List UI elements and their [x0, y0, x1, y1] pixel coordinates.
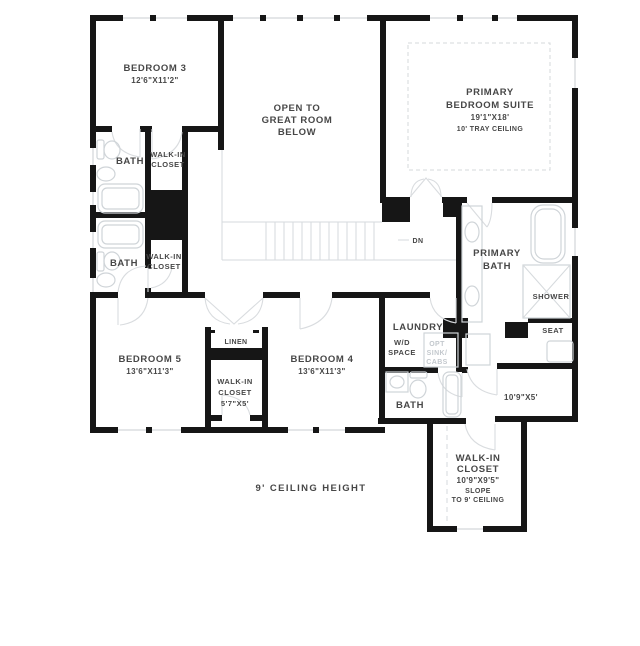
- door-swings: [112, 129, 497, 450]
- linen-name: LINEN: [225, 339, 248, 346]
- room-label-closet-mid: WALK-IN CLOSET: [146, 252, 182, 271]
- bedroom5-dims: 13'6"X11'3": [126, 367, 173, 376]
- room-label-closet-hall: WALK-IN CLOSET 5'7"X5': [217, 377, 253, 408]
- laundry-name: LAUNDRY: [393, 322, 443, 333]
- primary-suite-dims: 19'1"X18': [471, 113, 510, 122]
- primary-suite-ceiling-note: 10' TRAY CEILING: [457, 126, 524, 133]
- open-below-line1: OPEN TO: [274, 103, 321, 114]
- closet-upper-line2: CLOSET: [151, 160, 184, 169]
- open-below-line2: GREAT ROOM: [262, 115, 333, 126]
- open-below-line3: BELOW: [278, 127, 316, 138]
- laundry-opt-line3: CABS: [426, 359, 447, 366]
- room-label-bedroom-5: BEDROOM 5 13'6"X11'3": [119, 354, 182, 376]
- closet-upper-line1: WALK-IN: [150, 150, 186, 159]
- shower-seat-bench: [547, 341, 573, 362]
- primary-bath-line2: BATH: [483, 261, 511, 272]
- toilet: [410, 372, 427, 398]
- closet-hall-line2: CLOSET: [218, 388, 251, 397]
- hall-dims: 10'9"X5': [504, 393, 538, 402]
- seat-name: SEAT: [542, 326, 563, 335]
- bathtub: [443, 372, 461, 417]
- room-label-bath-lower: BATH: [396, 400, 424, 411]
- closet-hall-line1: WALK-IN: [217, 377, 253, 386]
- room-label-bedroom-3: BEDROOM 3 12'6"X11'2": [124, 63, 187, 85]
- closet-primary-note1: SLOPE: [465, 488, 491, 495]
- bedroom3-dims: 12'6"X11'2": [131, 76, 178, 85]
- bath-mid-name: BATH: [110, 258, 138, 269]
- bedroom3-name: BEDROOM 3: [124, 63, 187, 74]
- room-label-shower: SHOWER: [533, 292, 570, 301]
- closet-primary-note2: TO 9' CEILING: [452, 497, 505, 504]
- closet-hall-dims: 5'7"X5': [221, 399, 249, 408]
- room-label-linen: LINEN: [225, 339, 248, 346]
- room-label-open-below: OPEN TO GREAT ROOM BELOW: [262, 103, 333, 138]
- closet-mid-line1: WALK-IN: [146, 252, 182, 261]
- room-label-laundry: LAUNDRY W/D SPACE OPT SINK/ CABS: [388, 322, 448, 366]
- shower-name: SHOWER: [533, 292, 570, 301]
- room-label-primary-suite: PRIMARY BEDROOM SUITE 19'1"X18' 10' TRAY…: [446, 87, 534, 133]
- room-label-hall: 10'9"X5': [504, 393, 538, 402]
- stair-dn-label: DN: [413, 238, 424, 245]
- floor-plan: BEDROOM 3 12'6"X11'2" OPEN TO GREAT ROOM…: [0, 0, 640, 646]
- room-labels: BEDROOM 3 12'6"X11'2" OPEN TO GREAT ROOM…: [110, 63, 570, 504]
- room-label-seat: SEAT: [542, 326, 563, 335]
- laundry-opt-line2: SINK/: [427, 350, 448, 357]
- room-label-closet-upper: WALK-IN CLOSET: [150, 150, 186, 169]
- room-label-bedroom-4: BEDROOM 4 13'6"X11'3": [291, 354, 354, 376]
- ceiling-height-annotation: 9' CEILING HEIGHT: [255, 483, 366, 494]
- vanity: [462, 206, 482, 322]
- stair-annotation: DN: [413, 238, 424, 245]
- primary-suite-line1: PRIMARY: [466, 87, 514, 98]
- sink: [386, 372, 408, 392]
- bathtub: [98, 221, 143, 248]
- room-label-closet-primary: WALK-IN CLOSET 10'9"X9'5" SLOPE TO 9' CE…: [452, 453, 505, 504]
- closet-primary-line2: CLOSET: [457, 464, 499, 475]
- hall-cabinet: [466, 334, 490, 365]
- primary-suite-line2: BEDROOM SUITE: [446, 100, 534, 111]
- sink: [97, 167, 115, 181]
- bedroom4-name: BEDROOM 4: [291, 354, 354, 365]
- bath-upper-name: BATH: [116, 156, 144, 167]
- ceiling-height-label: 9' CEILING HEIGHT: [255, 483, 366, 494]
- sink: [97, 273, 115, 287]
- bedroom4-dims: 13'6"X11'3": [298, 367, 345, 376]
- room-label-bath-upper: BATH: [116, 156, 144, 167]
- laundry-opt-line1: OPT: [429, 341, 445, 348]
- primary-bath-line1: PRIMARY: [473, 248, 521, 259]
- freestanding-tub: [531, 205, 565, 263]
- bath-lower-name: BATH: [396, 400, 424, 411]
- closet-primary-dims: 10'9"X9'5": [457, 476, 500, 485]
- floorplan-canvas: BEDROOM 3 12'6"X11'2" OPEN TO GREAT ROOM…: [0, 0, 640, 646]
- bathtub: [98, 184, 143, 213]
- bedroom5-name: BEDROOM 5: [119, 354, 182, 365]
- closet-mid-line2: CLOSET: [147, 262, 180, 271]
- laundry-wd-line2: SPACE: [388, 348, 416, 357]
- room-label-primary-bath: PRIMARY BATH: [473, 248, 521, 272]
- closet-primary-line1: WALK-IN: [456, 453, 501, 464]
- laundry-wd-line1: W/D: [394, 338, 410, 347]
- room-label-bath-mid: BATH: [110, 258, 138, 269]
